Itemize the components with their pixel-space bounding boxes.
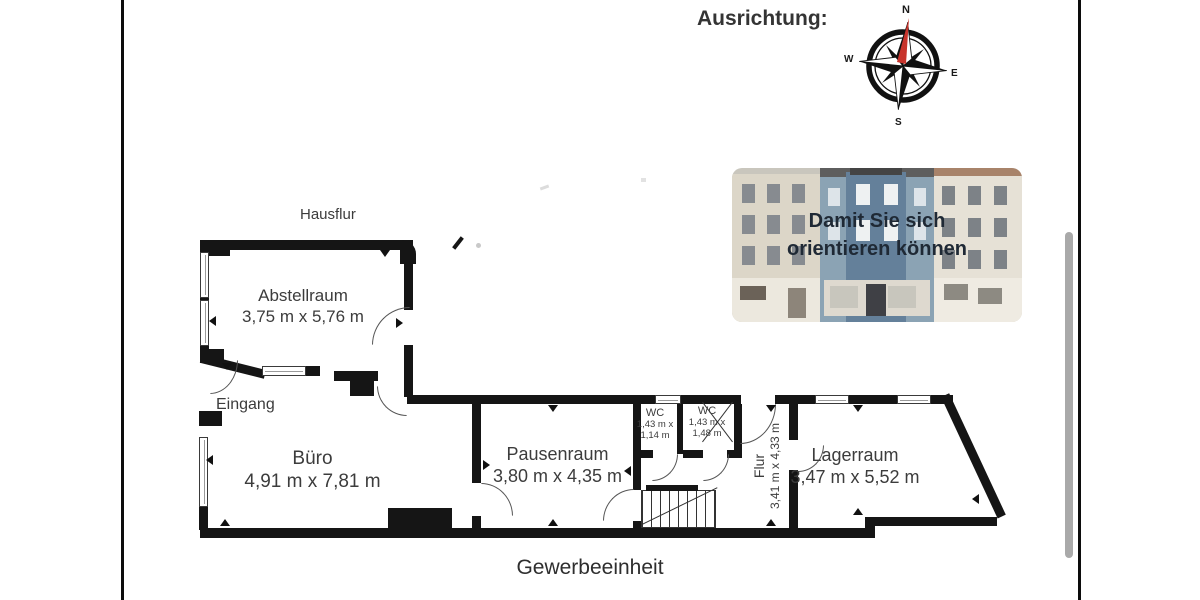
staircase bbox=[641, 490, 716, 528]
room-dims: 3,47 m x 5,52 m bbox=[760, 467, 950, 489]
window-symbol bbox=[897, 395, 931, 404]
page-right-border bbox=[1078, 0, 1081, 600]
wall bbox=[200, 528, 875, 538]
wall bbox=[865, 517, 997, 526]
wall bbox=[334, 371, 378, 381]
dimension-tick bbox=[853, 405, 863, 412]
vertical-scrollbar[interactable] bbox=[1065, 232, 1073, 558]
room-label-abstellraum: Abstellraum 3,75 m x 5,76 m bbox=[208, 286, 398, 327]
compass-s-label: S bbox=[895, 117, 902, 128]
compass-e-label: E bbox=[951, 68, 958, 79]
room-name: WC bbox=[682, 405, 732, 418]
photo-caption-line2: orientieren können bbox=[732, 238, 1022, 261]
dimension-tick bbox=[222, 363, 232, 370]
wall bbox=[683, 450, 703, 458]
wall bbox=[775, 395, 817, 404]
room-label-lagerraum: Lagerraum 3,47 m x 5,52 m bbox=[760, 445, 950, 489]
compass-rose-icon: N E S W bbox=[842, 2, 964, 128]
window-symbol bbox=[262, 366, 306, 376]
room-dims: 3,80 m x 4,35 m bbox=[460, 466, 655, 488]
room-name: WC bbox=[633, 407, 677, 420]
room-label-pausenraum: Pausenraum 3,80 m x 4,35 m bbox=[460, 444, 655, 488]
window-symbol bbox=[199, 437, 208, 507]
dimension-tick bbox=[220, 519, 230, 526]
unit-label: Gewerbeeinheit bbox=[440, 555, 740, 581]
chimney-block bbox=[388, 508, 452, 530]
entrance-label: Eingang bbox=[216, 395, 275, 415]
wall bbox=[407, 395, 655, 404]
photo-caption-line1: Damit Sie sich bbox=[732, 210, 1022, 233]
room-name: Büro bbox=[215, 447, 410, 470]
building-photo: Damit Sie sich orientieren können bbox=[732, 168, 1022, 322]
page: Ausrichtung: N E S W bbox=[0, 0, 1200, 600]
room-name: Abstellraum bbox=[208, 286, 398, 307]
print-artifact bbox=[476, 243, 481, 248]
dimension-tick bbox=[548, 519, 558, 526]
dimension-tick bbox=[548, 405, 558, 412]
wall bbox=[849, 395, 897, 404]
room-label-wc2: WC 1,43 m x 1,48 m bbox=[682, 405, 732, 439]
page-left-border bbox=[121, 0, 124, 600]
door-arc-wc2 bbox=[703, 454, 729, 481]
dimension-tick bbox=[972, 494, 979, 504]
orientation-label: Ausrichtung: bbox=[697, 6, 828, 32]
wall bbox=[404, 240, 413, 310]
print-artifact bbox=[540, 185, 549, 191]
room-dims: 1,14 m bbox=[633, 431, 677, 442]
door-arc bbox=[481, 483, 513, 516]
door-arc bbox=[603, 489, 634, 521]
room-name: Pausenraum bbox=[460, 444, 655, 466]
compass-n-label: N bbox=[902, 4, 910, 16]
wall bbox=[789, 404, 798, 440]
room-label-buero: Büro 4,91 m x 7,81 m bbox=[215, 447, 410, 493]
dimension-tick bbox=[853, 508, 863, 515]
compass-w-label: W bbox=[844, 54, 854, 65]
door-arc bbox=[377, 386, 407, 416]
room-dims: 3,75 m x 5,76 m bbox=[208, 307, 398, 328]
room-dims: 1,48 m bbox=[682, 429, 732, 440]
print-artifact bbox=[452, 236, 464, 249]
wall bbox=[304, 366, 320, 376]
room-label-wc1: WC 1,43 m x 1,14 m bbox=[633, 407, 677, 441]
room-dims: 1,43 m x bbox=[682, 418, 732, 429]
dimension-tick bbox=[380, 250, 390, 257]
room-dims: 1,43 m x bbox=[633, 420, 677, 431]
window-symbol bbox=[655, 395, 681, 404]
door-arc-wc1 bbox=[652, 454, 678, 481]
wall bbox=[199, 507, 208, 530]
wall bbox=[350, 381, 374, 396]
wall bbox=[727, 450, 742, 458]
print-artifact bbox=[641, 178, 646, 182]
wall bbox=[200, 240, 413, 250]
dimension-tick bbox=[206, 455, 213, 465]
room-dims: 4,91 m x 7,81 m bbox=[215, 470, 410, 493]
window-symbol bbox=[815, 395, 849, 404]
hallway-label: Hausflur bbox=[300, 206, 356, 224]
room-name: Lagerraum bbox=[760, 445, 950, 467]
